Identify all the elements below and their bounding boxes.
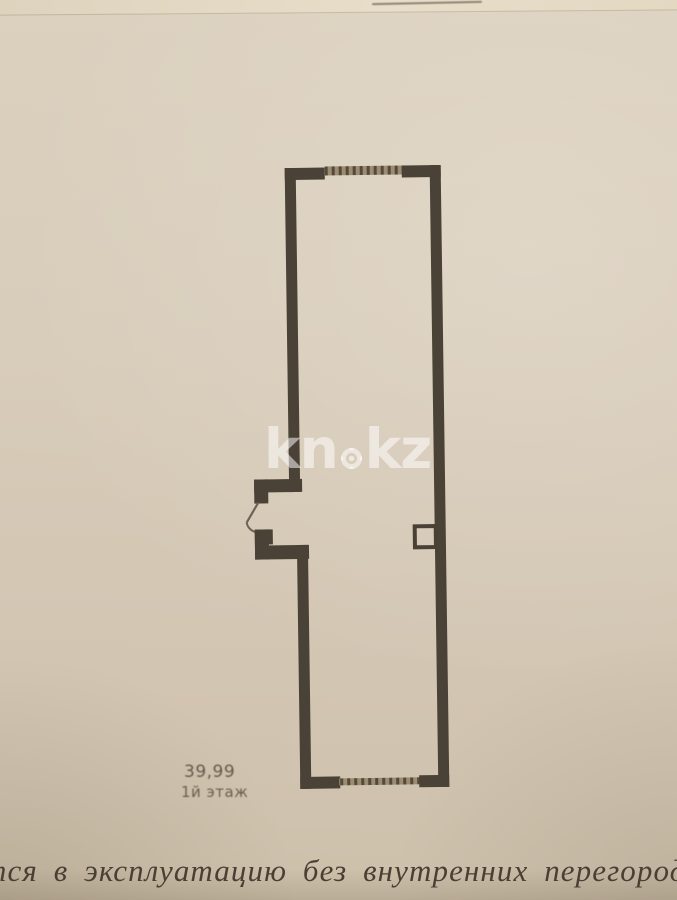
duct-square <box>415 526 436 547</box>
kn-kz-watermark: knkz <box>264 422 431 477</box>
floor-label: 1й этаж <box>181 783 248 801</box>
wall-bottom-left <box>300 776 340 789</box>
photographed-document-page: knkz 39,99 1й этаж тся в эксплуатацию бе… <box>0 0 677 900</box>
watermark-dot-icon <box>341 448 362 469</box>
area-label: 39,99 <box>184 762 235 782</box>
window-bottom <box>339 777 421 785</box>
wall-left-lower <box>297 545 311 789</box>
wall-right <box>430 165 450 787</box>
window-top <box>325 165 404 175</box>
door-leaf-line <box>246 503 258 523</box>
vestibule-upper-stub <box>254 479 268 503</box>
wall-bottom-right <box>419 775 449 787</box>
watermark-text-right: kz <box>365 417 432 481</box>
watermark-text-left: kn <box>264 417 338 481</box>
document-caption-text: тся в эксплуатацию без внутренних перего… <box>0 853 677 900</box>
